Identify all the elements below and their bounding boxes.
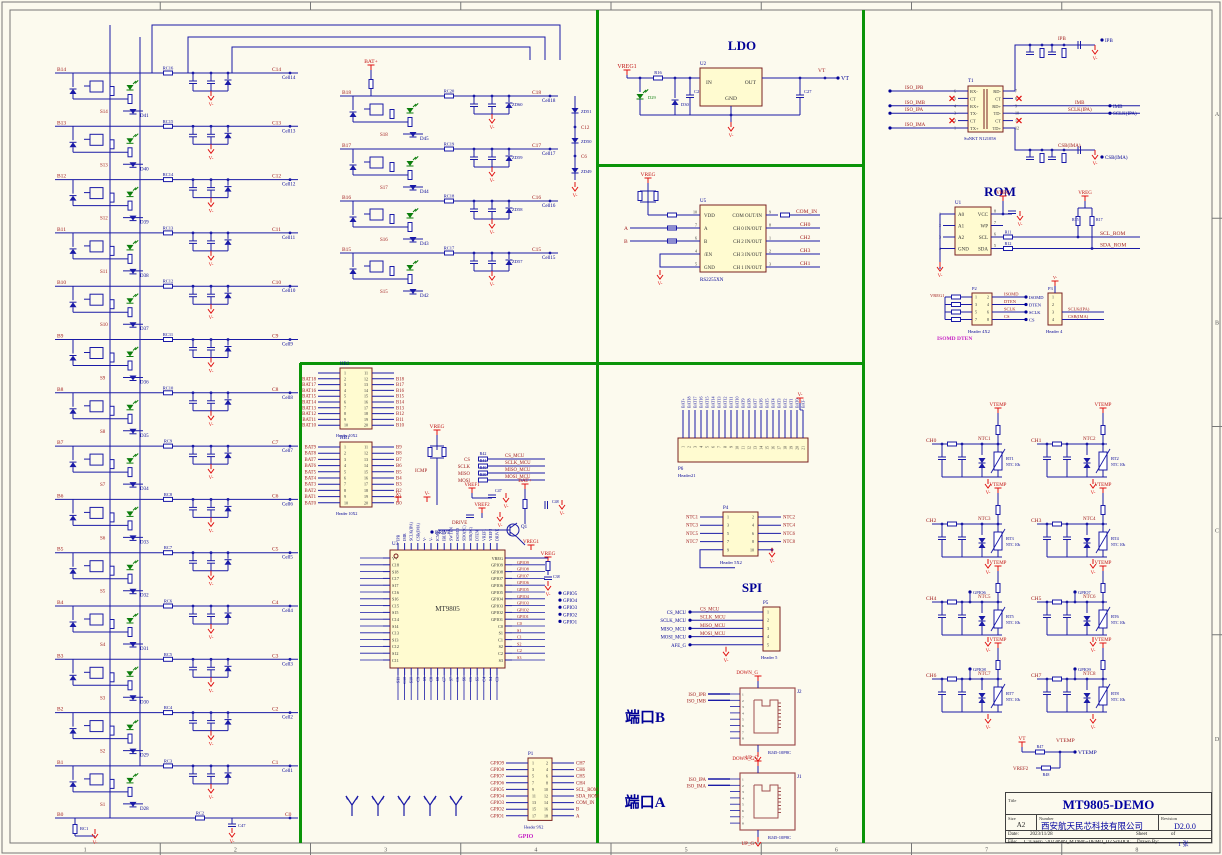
svg-text:CH5: CH5 (1031, 596, 1042, 602)
svg-text:B7: B7 (57, 440, 64, 446)
svg-text:BAT11: BAT11 (729, 397, 734, 408)
svg-text:NTC 10k: NTC 10k (1111, 621, 1125, 625)
svg-text:S6: S6 (100, 536, 106, 541)
svg-text:SDI(SC): SDI(SC) (468, 526, 473, 541)
battery-row[interactable]: B7S7D34RC9V-C7Cell7 (55, 439, 298, 493)
battery-row[interactable]: B18S18D45RC20V-C18Cell18ZD60 (340, 89, 558, 143)
svg-text:CH3: CH3 (800, 248, 811, 254)
svg-text:VREF2: VREF2 (474, 503, 490, 508)
svg-text:NTC8: NTC8 (1083, 672, 1096, 677)
svg-text:V-: V- (93, 841, 98, 846)
svg-text:8: 8 (742, 822, 744, 826)
svg-text:V-: V- (209, 316, 214, 321)
svg-text:5: 5 (695, 262, 697, 267)
svg-text:GPIO5: GPIO5 (490, 788, 504, 793)
svg-text:C12: C12 (392, 644, 399, 649)
svg-text:Cell13: Cell13 (282, 129, 296, 134)
svg-text:1: 1 (682, 446, 686, 448)
svg-text:DOWN_G: DOWN_G (736, 671, 758, 676)
svg-text:B5: B5 (57, 547, 64, 553)
svg-text:11: 11 (532, 794, 536, 799)
svg-text:VT: VT (841, 76, 849, 82)
svg-text:VREG: VREG (996, 191, 1010, 196)
svg-text:C6: C6 (272, 493, 279, 499)
svg-text:C1: C1 (272, 760, 279, 766)
svg-text:ZD58: ZD58 (512, 207, 523, 212)
svg-text:V-: V- (1018, 223, 1023, 228)
svg-text:VREF2: VREF2 (488, 529, 493, 541)
svg-text:D30: D30 (140, 700, 149, 705)
svg-text:CH7: CH7 (576, 762, 586, 767)
svg-text:1: 1 (532, 761, 534, 766)
title-label: Title (1008, 798, 1016, 803)
svg-text:C2: C2 (498, 651, 503, 656)
svg-text:C9: C9 (415, 677, 420, 682)
ldo-block[interactable]: LDOVREG1R16D29D30C26U2INOUTGNDC27VTVTV- (617, 38, 849, 139)
svg-text:NTC1: NTC1 (686, 516, 699, 521)
svg-text:B5: B5 (396, 470, 402, 475)
svg-text:S9: S9 (422, 677, 427, 681)
svg-text:GPIO2: GPIO2 (563, 613, 578, 618)
battery-row[interactable]: B12S12D39RC14V-C12Cell12 (55, 172, 298, 226)
svg-text:A1: A1 (958, 225, 965, 230)
svg-text:1: 1 (742, 778, 744, 782)
battery-row[interactable]: B3S3D30RC5V-C3Cell3 (55, 652, 298, 706)
svg-text:V-: V- (504, 505, 509, 510)
svg-text:VREG1: VREG1 (930, 293, 945, 298)
svg-text:BAT17: BAT17 (693, 396, 698, 408)
svg-text:GPIO4: GPIO4 (563, 599, 578, 604)
svg-text:8: 8 (546, 780, 548, 785)
svg-text:OUT: OUT (745, 80, 757, 86)
svg-text:C: C (1215, 529, 1219, 535)
svg-text:RT2: RT2 (1111, 456, 1119, 461)
svg-text:VDD: VDD (704, 214, 715, 219)
svg-text:R39: R39 (480, 472, 487, 477)
drawn-by-value: 1 张 (1178, 839, 1189, 848)
svg-text:13: 13 (364, 457, 368, 462)
svg-text:18: 18 (364, 488, 368, 493)
svg-text:C27: C27 (804, 89, 812, 94)
svg-text:11: 11 (364, 371, 368, 376)
svg-text:3: 3 (694, 446, 698, 448)
sheet-title: MT9805-DEMO (1006, 797, 1211, 813)
svg-text:4: 4 (1052, 317, 1054, 322)
svg-text:BAT13: BAT13 (717, 396, 722, 408)
svg-text:C7: C7 (272, 440, 279, 446)
svg-text:8: 8 (742, 737, 744, 741)
svg-text:RC4: RC4 (164, 705, 173, 710)
svg-text:DTEN: DTEN (475, 530, 480, 541)
svg-text:B4: B4 (396, 477, 402, 482)
svg-text:7: 7 (994, 220, 996, 225)
svg-text:8: 8 (769, 223, 771, 228)
svg-text:COM_IN: COM_IN (576, 801, 595, 806)
svg-text:C6: C6 (581, 155, 587, 160)
svg-text:B18: B18 (396, 377, 405, 382)
svg-text:VREF1: VREF1 (481, 529, 486, 541)
svg-text:8: 8 (344, 488, 346, 493)
svg-text:B17: B17 (342, 143, 351, 149)
svg-text:BAT18: BAT18 (687, 396, 692, 408)
svg-text:16: 16 (364, 476, 368, 481)
svg-text:SCLK_MCU: SCLK_MCU (660, 619, 686, 624)
svg-text:8: 8 (724, 446, 728, 448)
svg-text:RC14: RC14 (163, 172, 174, 177)
svg-text:Cell8: Cell8 (282, 396, 293, 401)
svg-text:ZD57: ZD57 (512, 259, 523, 264)
svg-text:1: 1 (769, 236, 771, 241)
p1-gpio-header[interactable]: P1Header 9X212GPIO9CH734GPIO8CH656GPIO7C… (490, 752, 599, 840)
ntc-grid[interactable]: CH0NTC1RT1NTC 10kVTEMPV-CH1NTC2RT2NTC 10… (926, 403, 1125, 777)
svg-text:GPIO1: GPIO1 (490, 814, 504, 819)
battery-row[interactable]: B15S15D42RC17V-C15Cell15ZD57 (340, 246, 558, 300)
svg-text:GPIO: GPIO (518, 834, 534, 840)
svg-text:RC1: RC1 (80, 826, 88, 831)
svg-text:R11: R11 (1005, 230, 1012, 235)
svg-text:GND: GND (958, 248, 969, 253)
svg-text:V-: V- (490, 231, 495, 236)
svg-text:12: 12 (364, 376, 368, 381)
svg-text:Cell18: Cell18 (542, 99, 556, 104)
svg-text:CH4: CH4 (926, 596, 937, 602)
svg-text:SDA_ROM: SDA_ROM (576, 795, 600, 800)
svg-text:BAT18: BAT18 (302, 377, 316, 382)
svg-text:RX-: RX- (970, 89, 978, 94)
svg-text:D37: D37 (140, 327, 149, 332)
svg-text:V-: V- (724, 659, 729, 664)
svg-text:20: 20 (364, 423, 368, 428)
svg-text:C13: C13 (392, 631, 399, 636)
mid-column[interactable]: P6Header211BAT+2BAT183BAT174BAT165BAT156… (625, 393, 808, 847)
svg-text:V-: V- (490, 283, 495, 288)
battery-column-2[interactable]: BAT+B18S18D45RC20V-C18Cell18ZD60B17S17D4… (340, 59, 592, 299)
svg-text:P4: P4 (723, 506, 729, 511)
svg-text:6: 6 (712, 446, 716, 448)
svg-text:S16: S16 (392, 597, 399, 602)
svg-text:B15: B15 (342, 247, 351, 253)
svg-text:COM_IN: COM_IN (796, 209, 817, 215)
svg-text:NTC6: NTC6 (1083, 595, 1096, 600)
svg-text:7: 7 (718, 446, 722, 448)
svg-text:V-: V- (986, 726, 991, 731)
sheet-label: Sheet (1136, 832, 1147, 837)
svg-text:Header 9X2: Header 9X2 (524, 824, 543, 829)
svg-text:4: 4 (546, 767, 548, 772)
svg-text:B8: B8 (57, 387, 64, 393)
svg-text:C14: C14 (272, 67, 281, 73)
iso-config-headers[interactable]: P2Header 4X2VREG112ISOMDISOMD34DTENDTEN5… (930, 275, 1104, 342)
battery-row[interactable]: B11S11D38RC13V-C11Cell11 (55, 225, 298, 279)
battery-row[interactable]: B6S6D33RC8V-C6Cell6 (55, 492, 298, 546)
svg-text:C13: C13 (272, 120, 281, 126)
svg-text:D39: D39 (140, 221, 149, 226)
svg-text:Cell1: Cell1 (282, 769, 293, 774)
hb1-connector[interactable]: HB1Header 10X2111BAT9B9212BAT8B8313BAT7B… (305, 436, 403, 516)
svg-text:C9: C9 (272, 334, 279, 340)
battery-row[interactable]: B13S13D40RC15V-C13Cell13 (55, 119, 298, 173)
svg-text:R40: R40 (480, 465, 487, 470)
p6-header21[interactable]: P6Header211BAT+2BAT183BAT174BAT165BAT156… (678, 393, 808, 478)
battery-row[interactable]: B5S5D32RC7V-C5Cell5 (55, 545, 298, 599)
svg-text:J2: J2 (797, 690, 802, 695)
battery-row[interactable]: B8S8D35RC10V-C8Cell8 (55, 385, 298, 439)
file-path: C:\Users\..\20230909_MT9805-DEMO_D2.SchD… (1024, 840, 1136, 845)
svg-text:UP_G: UP_G (745, 756, 758, 761)
svg-text:CH6: CH6 (576, 768, 586, 773)
svg-text:Cell17: Cell17 (542, 152, 556, 157)
svg-text:RX+: RX+ (970, 104, 979, 109)
svg-text:RC7: RC7 (164, 545, 173, 550)
svg-text:6: 6 (344, 476, 346, 481)
svg-text:CS: CS (1029, 318, 1035, 323)
svg-text:8: 8 (752, 539, 754, 544)
rom-block[interactable]: ROMU11A02A13A24GND8VCC7WP6SCL5SDAV-VREGV… (937, 184, 1140, 279)
svg-text:D30: D30 (681, 102, 689, 107)
analog-mux-block[interactable]: U5RS2255XN10VDD7A6B4/EN5GND9COM OUT/IN8C… (624, 172, 820, 287)
svg-text:2: 2 (546, 761, 548, 766)
svg-text:B7: B7 (396, 458, 402, 463)
logo-marks (346, 796, 462, 816)
svg-text:SCL_ROM: SCL_ROM (576, 788, 599, 793)
svg-text:C10: C10 (402, 677, 407, 684)
svg-text:3: 3 (344, 382, 346, 387)
svg-text:2: 2 (767, 618, 769, 623)
svg-text:VT: VT (1018, 736, 1026, 742)
svg-text:ISO_IPA: ISO_IPA (905, 108, 924, 113)
svg-text:2: 2 (344, 451, 346, 456)
svg-text:VTEMP: VTEMP (1078, 750, 1097, 756)
svg-text:16: 16 (364, 400, 368, 405)
svg-text:5: 5 (994, 243, 996, 248)
svg-text:TD+: TD+ (992, 126, 1001, 131)
svg-text:C16: C16 (392, 590, 399, 595)
svg-text:15: 15 (532, 807, 536, 812)
svg-text:NTC4: NTC4 (783, 524, 796, 529)
svg-text:3: 3 (975, 302, 977, 307)
svg-text:U2: U2 (700, 62, 707, 67)
svg-text:3: 3 (727, 523, 729, 528)
zener-chain[interactable]: ZD51C12ZD50C6ZD49V- (572, 96, 593, 199)
svg-text:7: 7 (742, 730, 744, 734)
svg-text:D29: D29 (648, 95, 656, 100)
svg-text:B: B (1215, 320, 1219, 326)
svg-text:D28: D28 (140, 807, 149, 812)
svg-text:VREG: VREG (641, 172, 656, 178)
svg-text:P6: P6 (678, 467, 684, 472)
svg-text:Cell7: Cell7 (282, 449, 293, 454)
svg-text:S18: S18 (392, 569, 399, 574)
b0-rail[interactable]: B0RC1V-RC2C47V-C0 (55, 811, 298, 847)
svg-text:Header21: Header21 (678, 473, 696, 478)
svg-text:B: B (624, 239, 628, 245)
port-a-rj45[interactable]: J112345678ISO_IPAISO_IMAUP_GUP_GRJ45-10P… (687, 756, 802, 847)
port-b-rj45[interactable]: J212345678ISO_IPBISO_IMBDOWN_GDOWN_GRJ45… (687, 671, 802, 762)
svg-text:S3: S3 (100, 696, 106, 701)
svg-text:10: 10 (736, 446, 740, 450)
svg-text:V-: V- (209, 796, 214, 801)
battery-row[interactable]: B16S16D43RC18V-C16Cell16ZD58 (340, 194, 558, 248)
svg-text:BAT1: BAT1 (789, 398, 794, 408)
title-block[interactable]: Title MT9805-DEMO Size A2 Number 西安航天民芯科… (1005, 792, 1212, 843)
svg-text:BAT14: BAT14 (302, 401, 316, 406)
svg-text:V+: V+ (392, 556, 398, 561)
svg-text:GPIO9: GPIO9 (491, 563, 503, 568)
mt9805-chip[interactable]: U3MT9805V+VREGIPBS11C18GPIO9IMBC10S18GPI… (360, 521, 545, 700)
svg-text:6: 6 (546, 774, 548, 779)
svg-text:GPIO2: GPIO2 (490, 808, 504, 813)
drawn-by-label: Drawn By: (1137, 840, 1159, 845)
svg-text:CH1: CH1 (800, 261, 811, 267)
svg-text:RT7: RT7 (1006, 691, 1014, 696)
hb2-connector[interactable]: HB2Header 10X2111212BAT18B18313BAT17B174… (302, 362, 404, 438)
svg-text:V-: V- (209, 636, 214, 641)
svg-text:B9: B9 (57, 334, 64, 340)
svg-text:S3: S3 (517, 655, 521, 660)
svg-text:C12: C12 (581, 126, 590, 131)
svg-text:MISO_MCU: MISO_MCU (700, 624, 726, 629)
svg-text:R16: R16 (654, 70, 662, 75)
svg-text:ZD50: ZD50 (581, 139, 592, 144)
svg-text:14: 14 (544, 800, 548, 805)
battery-row[interactable]: B9S9D36RC11V-C9Cell9 (55, 332, 298, 386)
svg-text:VREG: VREG (430, 424, 445, 430)
svg-text:IPB: IPB (396, 534, 401, 541)
svg-text:A: A (576, 814, 580, 819)
svg-text:BAT+: BAT+ (518, 478, 532, 484)
battery-row[interactable]: B10S10D37RC12V-C10Cell10 (55, 279, 298, 333)
svg-text:S15: S15 (392, 610, 399, 615)
svg-text:R48: R48 (1043, 772, 1050, 777)
svg-text:V-: V- (490, 126, 495, 131)
svg-text:VTEMP: VTEMP (990, 483, 1007, 488)
svg-text:20: 20 (796, 446, 800, 450)
svg-text:B3: B3 (396, 483, 402, 488)
svg-text:V-: V- (729, 134, 734, 139)
svg-text:13: 13 (532, 800, 536, 805)
svg-text:GPIO3: GPIO3 (517, 601, 529, 606)
svg-text:Cell5: Cell5 (282, 556, 293, 561)
svg-text:4: 4 (695, 249, 697, 254)
svg-text:8: 8 (987, 317, 989, 322)
svg-text:9: 9 (344, 494, 346, 499)
svg-text:C0: C0 (498, 624, 503, 629)
sheet-of-label: of (1171, 832, 1175, 837)
svg-text:RT8: RT8 (1111, 691, 1119, 696)
svg-text:D33: D33 (140, 540, 149, 545)
svg-text:12: 12 (748, 446, 752, 450)
svg-text:DTEN: DTEN (1029, 303, 1042, 308)
svg-text:RC11: RC11 (163, 332, 173, 337)
svg-text:BAT8: BAT8 (305, 452, 317, 457)
battery-row[interactable]: B14S14D41RC16V-C14Cell14 (55, 66, 298, 120)
svg-text:BAT8: BAT8 (747, 398, 752, 408)
svg-text:RC3: RC3 (164, 758, 173, 763)
svg-text:CT: CT (970, 96, 976, 101)
svg-text:P2: P2 (972, 286, 977, 291)
svg-text:BAT7: BAT7 (305, 458, 317, 463)
svg-text:V-: V- (1091, 491, 1096, 496)
svg-text:B16: B16 (342, 195, 351, 201)
svg-text:GPIO4: GPIO4 (490, 795, 504, 800)
svg-text:GPIO5: GPIO5 (491, 590, 503, 595)
svg-text:VREG1: VREG1 (523, 540, 540, 545)
svg-text:V-: V- (230, 840, 235, 845)
svg-text:V-: V- (1093, 162, 1098, 167)
svg-text:C48: C48 (552, 499, 559, 504)
battery-row[interactable]: B2S2D29RC4V-C2Cell2 (55, 705, 298, 759)
svg-text:ICMP: ICMP (415, 469, 427, 474)
svg-text:A2: A2 (958, 236, 965, 241)
left-battery-stack[interactable]: B14S14D41RC16V-C14Cell14B13S13D40RC15V-C… (55, 25, 560, 846)
svg-text:V-: V- (209, 156, 214, 161)
svg-text:RT5: RT5 (1006, 614, 1014, 619)
svg-text:17: 17 (778, 446, 782, 450)
svg-text:GPIO9: GPIO9 (490, 762, 504, 767)
svg-text:SCLK_MCU: SCLK_MCU (700, 616, 726, 621)
ntc-block[interactable]: CH6GPIO8NTC7RT7NTC 10kVTEMPV- (926, 638, 1020, 731)
svg-text:4: 4 (742, 711, 744, 715)
svg-text:18: 18 (784, 446, 788, 450)
svg-text:CT: CT (995, 119, 1001, 124)
svg-text:C14: C14 (392, 617, 400, 622)
svg-text:12: 12 (544, 794, 548, 799)
svg-text:C15: C15 (532, 247, 541, 253)
number-label: Number (1039, 816, 1054, 821)
svg-text:21: 21 (802, 446, 806, 450)
svg-text:BAT2: BAT2 (305, 489, 317, 494)
svg-text:Cell11: Cell11 (282, 236, 296, 241)
svg-text:2: 2 (769, 249, 771, 254)
svg-text:B18: B18 (342, 90, 351, 96)
schematic-canvas: 12345678ABCDB14S14D41RC16V-C14Cell14B13S… (0, 0, 1222, 855)
vtemp-divider[interactable]: VTR47VTEMPVTEMPVREF2R48 (1013, 736, 1097, 777)
svg-text:Cell2: Cell2 (282, 716, 293, 721)
svg-text:V-: V- (209, 370, 214, 375)
svg-text:SPI: SPI (742, 580, 762, 595)
svg-text:18: 18 (544, 813, 548, 818)
svg-text:V-: V- (770, 560, 775, 565)
svg-text:ISO_IMB: ISO_IMB (905, 101, 926, 106)
svg-text:Cell6: Cell6 (282, 502, 293, 507)
p5-spi-header[interactable]: P5Header 51CS_MCUCS_MCU2SCLK_MCUSCLK_MCU… (660, 601, 780, 664)
svg-text:C18: C18 (392, 563, 399, 568)
svg-text:ISO_IPB: ISO_IPB (688, 693, 706, 698)
svg-text:SDA_ROM: SDA_ROM (1100, 243, 1126, 249)
svg-text:D42: D42 (420, 294, 429, 299)
svg-text:BAT12: BAT12 (723, 396, 728, 408)
svg-text:V-: V- (1091, 571, 1096, 576)
svg-text:V-: V- (209, 476, 214, 481)
battery-row[interactable]: B17S17D44RC19V-C17Cell17ZD59 (340, 142, 558, 196)
svg-text:BAT4: BAT4 (305, 477, 317, 482)
iso-transformer-block[interactable]: T1SuNKT N12105S6RX-5CT4RX+3TX-2CT1TX+7RD… (888, 37, 1140, 167)
svg-text:5: 5 (344, 469, 346, 474)
svg-text:4: 4 (344, 463, 346, 468)
battery-row[interactable]: B4S4D31RC6V-C4Cell4 (55, 599, 298, 653)
svg-text:VCC: VCC (978, 213, 989, 218)
p4-ntc-header[interactable]: P4Header 5X212NTC1NTC234NTC3NTC456NTC5NT… (686, 506, 796, 568)
svg-text:IMB: IMB (1075, 101, 1085, 106)
svg-text:B16: B16 (396, 389, 405, 394)
svg-text:6: 6 (695, 236, 697, 241)
mcu-block[interactable]: HB2Header 10X2111212BAT18B18313BAT17B174… (302, 362, 600, 840)
ntc-block[interactable]: CH7GPIO9NTC8RT8NTC 10kVTEMPV- (1031, 638, 1125, 731)
svg-text:BAT5: BAT5 (765, 398, 770, 408)
svg-text:CS_MCU: CS_MCU (667, 611, 687, 616)
battery-row[interactable]: B1S1D28RC3V-C1Cell1 (55, 758, 298, 812)
svg-text:Header 5: Header 5 (761, 655, 778, 660)
